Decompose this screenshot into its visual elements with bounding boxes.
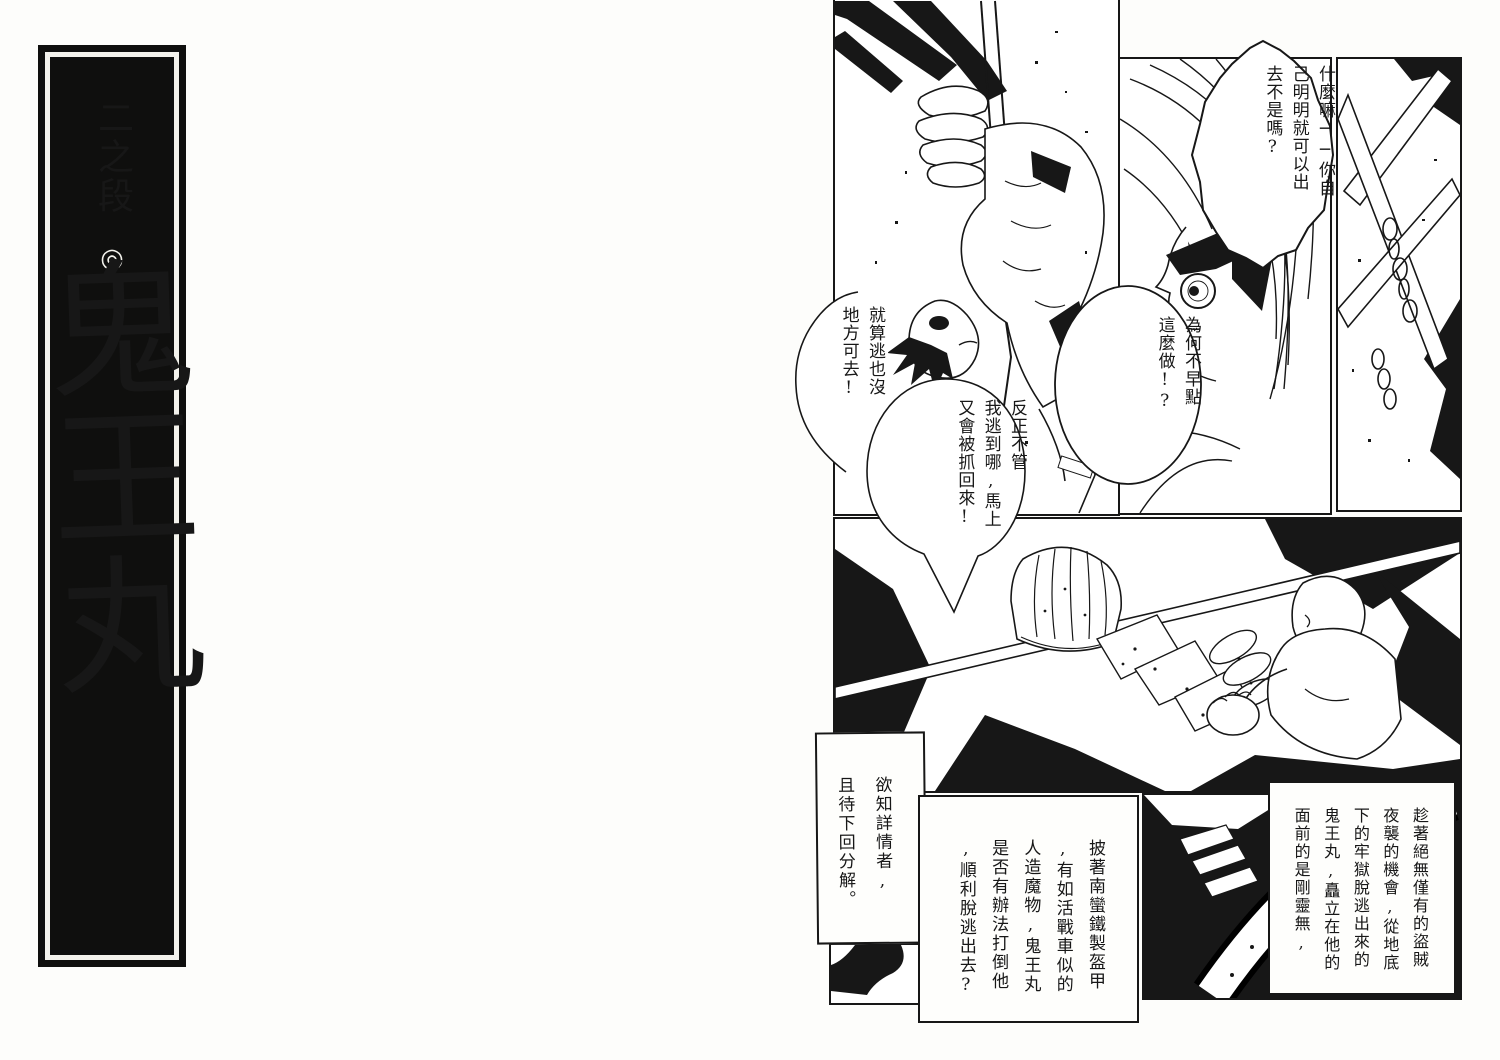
manga-double-page-spread: { "page": { "paper_color": "#fdfdfb", "i… xyxy=(0,0,1500,1060)
panel-small-silhouette xyxy=(829,943,926,1005)
speech-caught-text: 反正不管 我逃到哪,馬上 又會被抓回來! xyxy=(862,399,1030,528)
debris-chains-art xyxy=(1338,59,1460,510)
chapter-title-calligraphy: 鬼王丸 xyxy=(0,249,227,700)
caption-box-narration-question: 披著南蠻鐵製盔甲 ,有如活戰車似的 人造魔物,鬼王丸 是否有辦法打倒他 ,順利脫… xyxy=(918,795,1139,1023)
chapter-title-banner-frame: 二之段 ◎ 鬼王丸 xyxy=(45,52,179,960)
chapter-title-banner: 二之段 ◎ 鬼王丸 xyxy=(38,45,186,967)
speech-bubble-why: 為何不早點 這麼做!? xyxy=(1052,283,1204,488)
panel-debris-chains xyxy=(1336,57,1462,512)
caption-next-chapter-text: 欲知詳情者, 且待下回分解。 xyxy=(825,776,901,910)
caption-box-next-chapter: 欲知詳情者, 且待下回分解。 xyxy=(815,731,927,944)
silhouette-art xyxy=(831,945,924,1003)
caption-box-narration-recap: 趁著絕無僅有的盜賊 夜襲的機會,從地底 下的牢獄脫逃出來的 鬼王丸,矗立在他的 … xyxy=(1268,781,1456,995)
speech-bubble-what: 什麼嘛──你自 己明明就可以出 去不是嗎? xyxy=(1188,38,1338,273)
speech-what-text: 什麼嘛──你自 己明明就可以出 去不是嗎? xyxy=(1188,65,1338,197)
chapter-number-label: 二之段 xyxy=(86,99,138,216)
speech-why-text: 為何不早點 這麼做!? xyxy=(1052,316,1204,412)
caption-narration-question-text: 披著南蠻鐵製盔甲 ,有如活戰車似的 人造魔物,鬼王丸 是否有辦法打倒他 ,順利脫… xyxy=(950,839,1111,997)
caption-narration-recap-text: 趁著絕無僅有的盜賊 夜襲的機會,從地底 下的牢獄脫逃出來的 鬼王丸,矗立在他的 … xyxy=(1286,807,1434,972)
speech-bubble-caught: 反正不管 我逃到哪,馬上 又會被抓回來! xyxy=(862,376,1030,616)
